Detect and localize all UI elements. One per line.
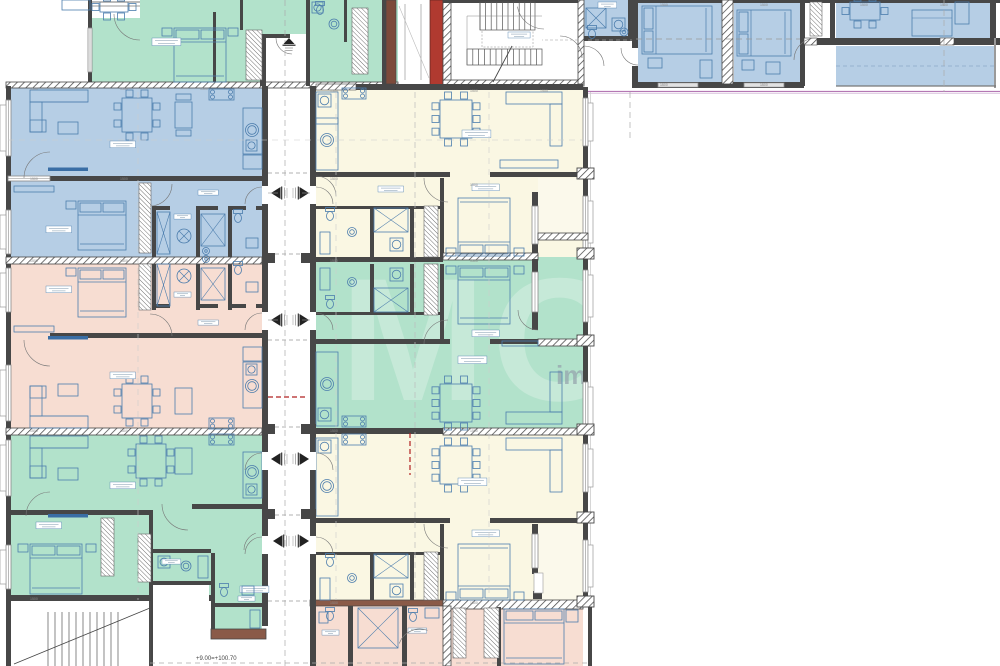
svg-text:1500: 1500 bbox=[940, 3, 948, 7]
svg-text:+9.00=+100.70: +9.00=+100.70 bbox=[196, 656, 237, 662]
svg-text:1500: 1500 bbox=[120, 87, 128, 91]
svg-text:1500: 1500 bbox=[470, 259, 478, 263]
svg-text:1500: 1500 bbox=[120, 259, 128, 263]
svg-text:1500: 1500 bbox=[540, 89, 548, 93]
svg-text:1500: 1500 bbox=[30, 87, 38, 91]
svg-text:1500: 1500 bbox=[30, 429, 38, 433]
svg-text:1500: 1500 bbox=[30, 259, 38, 263]
svg-text:1500: 1500 bbox=[330, 89, 338, 93]
svg-text:1500: 1500 bbox=[470, 429, 478, 433]
svg-text:1500: 1500 bbox=[470, 89, 478, 93]
svg-text:1500: 1500 bbox=[120, 177, 128, 181]
svg-text:1500: 1500 bbox=[30, 177, 38, 181]
svg-text:im: im bbox=[556, 360, 586, 390]
svg-text:1500: 1500 bbox=[330, 429, 338, 433]
svg-text:1500: 1500 bbox=[860, 3, 868, 7]
svg-text:1500: 1500 bbox=[330, 177, 338, 181]
svg-text:1500: 1500 bbox=[470, 601, 478, 605]
svg-text:1500: 1500 bbox=[660, 3, 668, 7]
svg-text:1500: 1500 bbox=[660, 83, 668, 87]
svg-text:1500: 1500 bbox=[30, 597, 38, 601]
svg-text:1500: 1500 bbox=[330, 259, 338, 263]
svg-text:1500: 1500 bbox=[200, 87, 208, 91]
svg-text:1500: 1500 bbox=[760, 83, 768, 87]
svg-text:1500: 1500 bbox=[120, 429, 128, 433]
svg-text:1500: 1500 bbox=[330, 601, 338, 605]
svg-text:1500: 1500 bbox=[470, 183, 478, 187]
svg-text:1500: 1500 bbox=[760, 3, 768, 7]
